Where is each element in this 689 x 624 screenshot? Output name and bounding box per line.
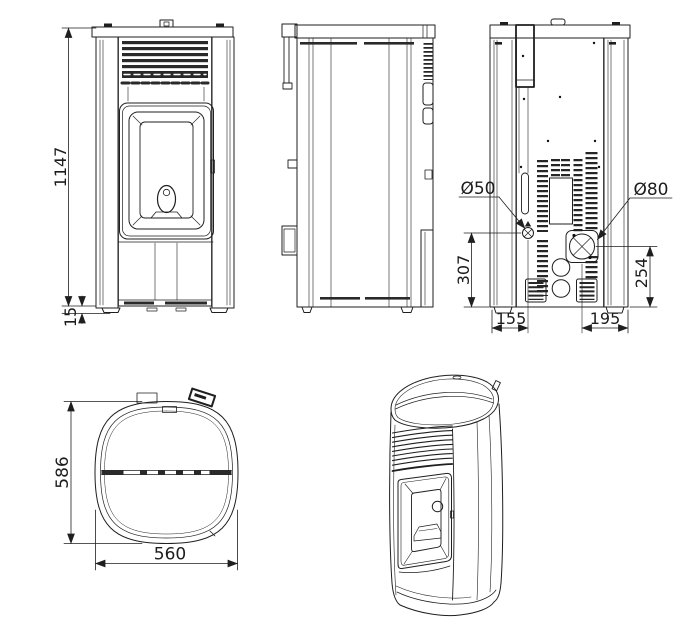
dim-overall-height-label: 1147 [51, 147, 70, 188]
rear-slot [522, 173, 529, 214]
dim-air-intake-diameter-label: Ø50 [460, 179, 495, 199]
perspective-lid [391, 375, 500, 428]
dim-flue-diameter-label: Ø80 [633, 180, 668, 200]
rear-knockout-lower [552, 280, 570, 298]
perspective-grille [393, 426, 453, 471]
front-air-grille [122, 41, 208, 83]
front-left-column [96, 37, 118, 308]
dim-flue-diameter [598, 198, 673, 240]
front-lower-panel [118, 242, 213, 305]
rear-left-column [490, 38, 516, 307]
dim-depth-label: 586 [53, 456, 73, 488]
rear-view [490, 19, 630, 313]
dim-base-height-label: 15 [61, 307, 80, 327]
side-view [282, 24, 435, 313]
technical-drawing: 1147 15 [0, 0, 689, 624]
perspective-door [398, 473, 454, 568]
dim-air-intake-diameter [459, 197, 525, 229]
front-door [120, 103, 215, 239]
perspective-view [390, 375, 503, 615]
dim-air-intake-offset-label: 155 [496, 309, 527, 328]
dim-air-intake-height-label: 307 [454, 255, 473, 286]
burn-pot [414, 524, 441, 541]
front-right-column [212, 37, 234, 308]
rear-right-column [604, 38, 628, 307]
top-view [95, 389, 238, 544]
rear-bottom-grilles [526, 279, 598, 302]
dim-flue-height-label: 254 [632, 258, 651, 289]
dim-width-label: 560 [154, 545, 186, 565]
air-intake-port [523, 221, 534, 239]
top-seam [102, 470, 232, 475]
dim-flue-offset-label: 195 [590, 309, 621, 328]
front-view [92, 20, 234, 313]
rear-plate [550, 178, 573, 224]
drawing-sheet: 1147 15 [0, 0, 689, 624]
rear-knockout-upper [552, 259, 570, 277]
